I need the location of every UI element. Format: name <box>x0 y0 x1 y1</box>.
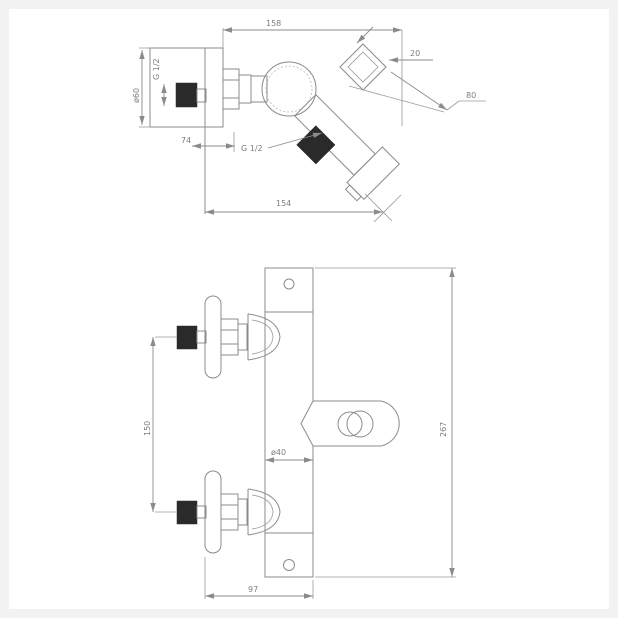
dimension-overall-width: 158 <box>223 19 402 48</box>
bottom-mount-hole <box>284 560 295 571</box>
knob-circle <box>262 62 316 116</box>
dimension-wall-offset: 74 <box>181 132 235 152</box>
lower-escutcheon <box>205 471 221 553</box>
dimension-bottom-width: 154 <box>205 199 383 212</box>
technical-drawing: 158 ø60 G 1/2 74 <box>0 0 618 618</box>
spout-extension-ticks <box>365 194 401 222</box>
dimension-overall-height: 267 <box>315 268 456 577</box>
dimension-body-diameter: ø40 <box>265 448 313 460</box>
top-mount-plate <box>265 268 313 312</box>
knob-front-outer <box>347 411 373 437</box>
upper-nut <box>221 319 238 355</box>
dim-20-label: 20 <box>410 49 420 58</box>
dim-97-label: 97 <box>248 585 258 594</box>
wall-union-block <box>176 83 197 107</box>
upper-escutcheon <box>205 296 221 378</box>
dimension-shower-offset: 20 <box>357 27 433 60</box>
dimension-base-width: 97 <box>205 557 313 599</box>
upper-wall-union-block <box>177 326 197 349</box>
dimension-inlet-thread: G 1/2 <box>152 58 164 106</box>
top-mount-hole <box>284 279 294 289</box>
dim-154-label: 154 <box>276 199 291 208</box>
upper-bell <box>248 314 280 360</box>
inlet-thread-label: G 1/2 <box>152 58 161 80</box>
knob-tab <box>301 401 399 446</box>
dim-80-label: 80 <box>466 91 476 100</box>
spout-head <box>347 147 399 199</box>
shower-outlet <box>340 44 386 90</box>
dimension-inlet-spacing: 150 <box>143 337 177 512</box>
dim-267-label: 267 <box>439 422 448 437</box>
image-canvas: 158 ø60 G 1/2 74 <box>0 0 618 618</box>
lower-nut <box>221 494 238 530</box>
spout-union-block <box>297 126 335 164</box>
dim-dia60-label: ø60 <box>132 88 141 103</box>
front-view: 150 267 ø40 97 <box>143 268 456 599</box>
aerator <box>346 185 362 201</box>
lower-adapter <box>238 499 247 525</box>
dim-158-label: 158 <box>266 19 281 28</box>
lower-wall-union-block <box>177 501 197 524</box>
outlet-thread-label: G 1/2 <box>241 144 263 153</box>
dimension-escutcheon-diameter: ø60 <box>132 48 151 127</box>
dimension-spout-reach: 80 <box>349 72 486 112</box>
spout-arm <box>281 88 399 206</box>
lower-bell <box>248 489 280 535</box>
dim-150-label: 150 <box>143 421 152 436</box>
upper-adapter <box>238 324 247 350</box>
dim-dia40-label: ø40 <box>271 448 286 457</box>
dim-74-label: 74 <box>181 136 191 145</box>
side-view: 158 ø60 G 1/2 74 <box>132 19 486 222</box>
connection-nuts <box>223 69 267 109</box>
